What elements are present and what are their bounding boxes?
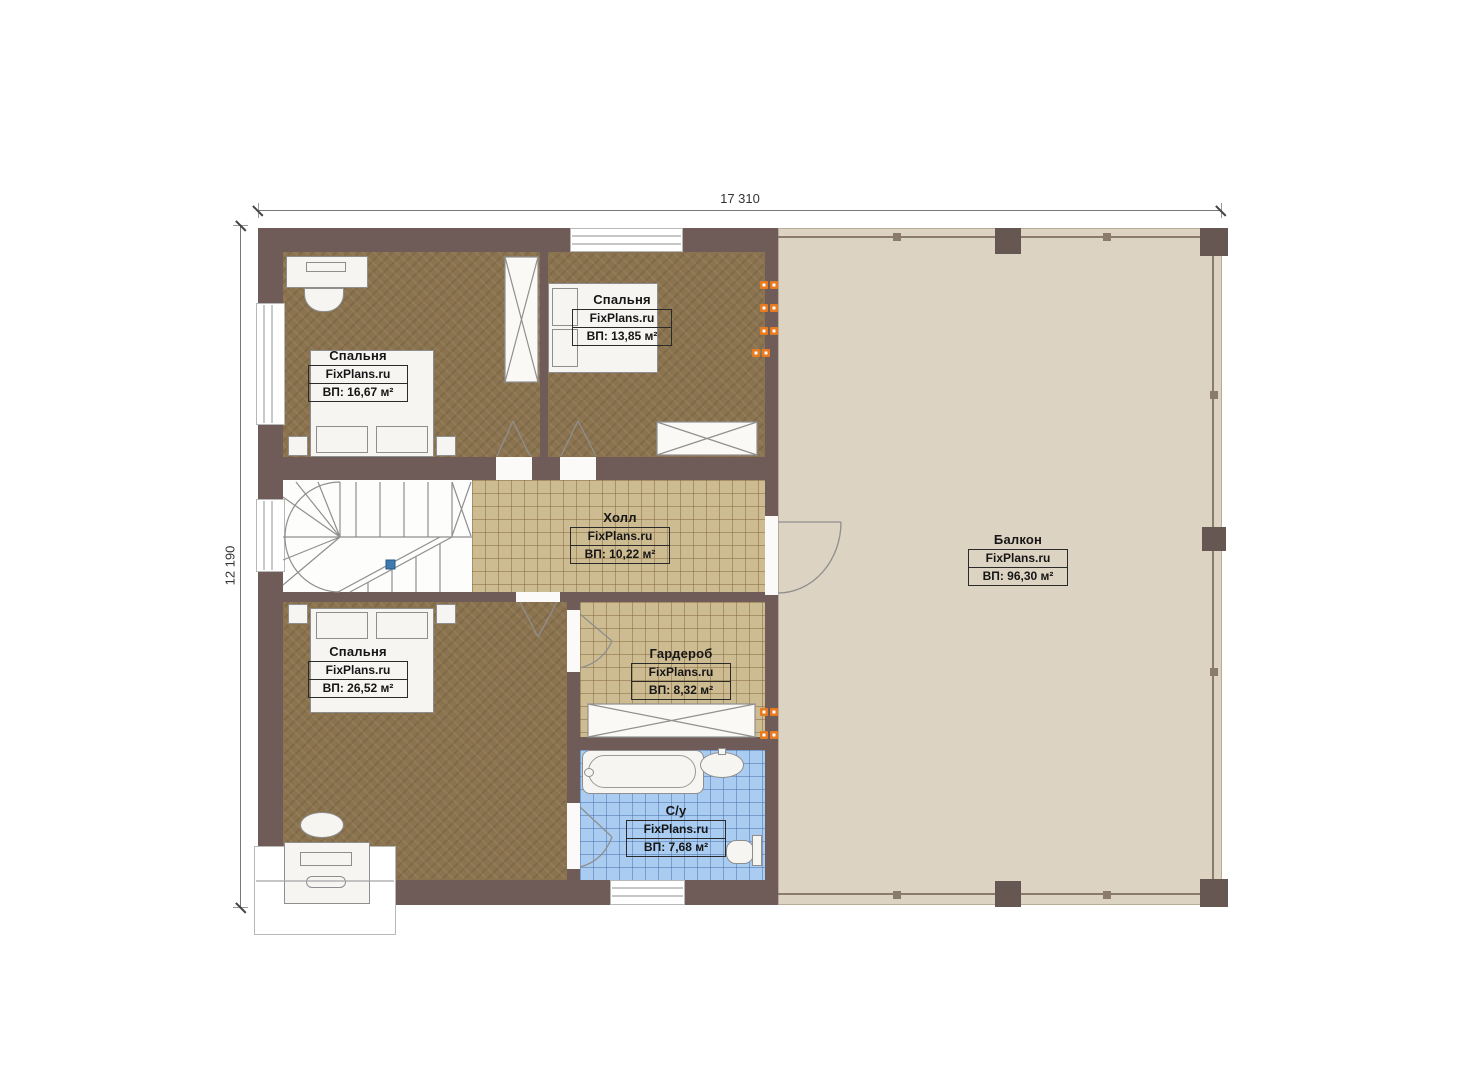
nightstand [288, 436, 308, 456]
railing-tick [893, 891, 901, 899]
balcony-pillar [1200, 879, 1228, 907]
dimension-line [240, 225, 241, 908]
door-opening [567, 610, 580, 672]
room-area: ВП: 7,68 м² [626, 838, 726, 857]
door-opening [567, 803, 580, 869]
room-name: Балкон [968, 532, 1068, 547]
room-label-hall: Холл FixPlans.ru ВП: 10,22 м² [570, 510, 670, 564]
room-name: Гардероб [631, 646, 731, 661]
room-area: ВП: 26,52 м² [308, 679, 408, 698]
room-area: ВП: 96,30 м² [968, 567, 1068, 586]
toilet-bowl [726, 840, 754, 864]
balcony-pillar [995, 881, 1021, 907]
room-label-bedroom-bottom-left: Спальня FixPlans.ru ВП: 26,52 м² [308, 644, 408, 698]
desk-item [306, 876, 346, 888]
room-area: ВП: 8,32 м² [631, 681, 731, 700]
door-opening [516, 592, 560, 602]
room-brand: FixPlans.ru [631, 663, 731, 682]
room-label-bedroom-top-middle: Спальня FixPlans.ru ВП: 13,85 м² [572, 292, 672, 346]
balcony-pillar [1202, 527, 1226, 551]
bathtub-basin [588, 755, 696, 788]
window [256, 303, 285, 425]
balcony-pillar [1200, 228, 1228, 256]
room-label-wardrobe: Гардероб FixPlans.ru ВП: 8,32 м² [631, 646, 731, 700]
sink-tap [718, 748, 726, 755]
room-brand: FixPlans.ru [572, 309, 672, 328]
window [610, 880, 685, 905]
pillow [316, 612, 368, 639]
railing-tick [1210, 668, 1218, 676]
room-brand: FixPlans.ru [570, 527, 670, 546]
window [256, 499, 285, 572]
pillow [376, 426, 428, 453]
room-area: ВП: 16,67 м² [308, 383, 408, 402]
desk [286, 256, 368, 288]
railing-tick [1103, 891, 1111, 899]
toilet-tank [752, 835, 762, 866]
floor-plan: 17 310 12 190 [0, 0, 1474, 1080]
pillow [316, 426, 368, 453]
dimension-width-label: 17 310 [690, 191, 790, 206]
room-brand: FixPlans.ru [968, 549, 1068, 568]
dimension-left: 12 190 [0, 0, 260, 1080]
room-name: С/у [626, 803, 726, 818]
room-brand: FixPlans.ru [626, 820, 726, 839]
sink [700, 752, 744, 778]
dimension-height-label: 12 190 [223, 521, 238, 611]
room-label-balcony: Балкон FixPlans.ru ВП: 96,30 м² [968, 532, 1068, 586]
door-opening [496, 457, 532, 480]
room-area: ВП: 13,85 м² [572, 327, 672, 346]
door-opening-balcony [765, 516, 778, 595]
room-label-bedroom-top-left: Спальня FixPlans.ru ВП: 16,67 м² [308, 348, 408, 402]
room-name: Спальня [572, 292, 672, 307]
desk-item [306, 262, 346, 272]
room-name: Холл [570, 510, 670, 525]
room-name: Спальня [308, 644, 408, 659]
window [570, 228, 683, 252]
railing-tick [1210, 391, 1218, 399]
balcony-pillar [995, 228, 1021, 254]
nightstand [436, 604, 456, 624]
pillow [376, 612, 428, 639]
room-brand: FixPlans.ru [308, 365, 408, 384]
dimension-line [258, 210, 1222, 211]
stairwell-floor [283, 480, 472, 592]
room-area: ВП: 10,22 м² [570, 545, 670, 564]
room-name: Спальня [308, 348, 408, 363]
door-opening [560, 457, 596, 480]
desk-item [300, 852, 352, 866]
nightstand [288, 604, 308, 624]
room-brand: FixPlans.ru [308, 661, 408, 680]
room-label-bathroom: С/у FixPlans.ru ВП: 7,68 м² [626, 803, 726, 857]
chair [300, 812, 344, 838]
railing-tick [893, 233, 901, 241]
railing-tick [1103, 233, 1111, 241]
nightstand [436, 436, 456, 456]
bathtub-tap [584, 768, 594, 777]
